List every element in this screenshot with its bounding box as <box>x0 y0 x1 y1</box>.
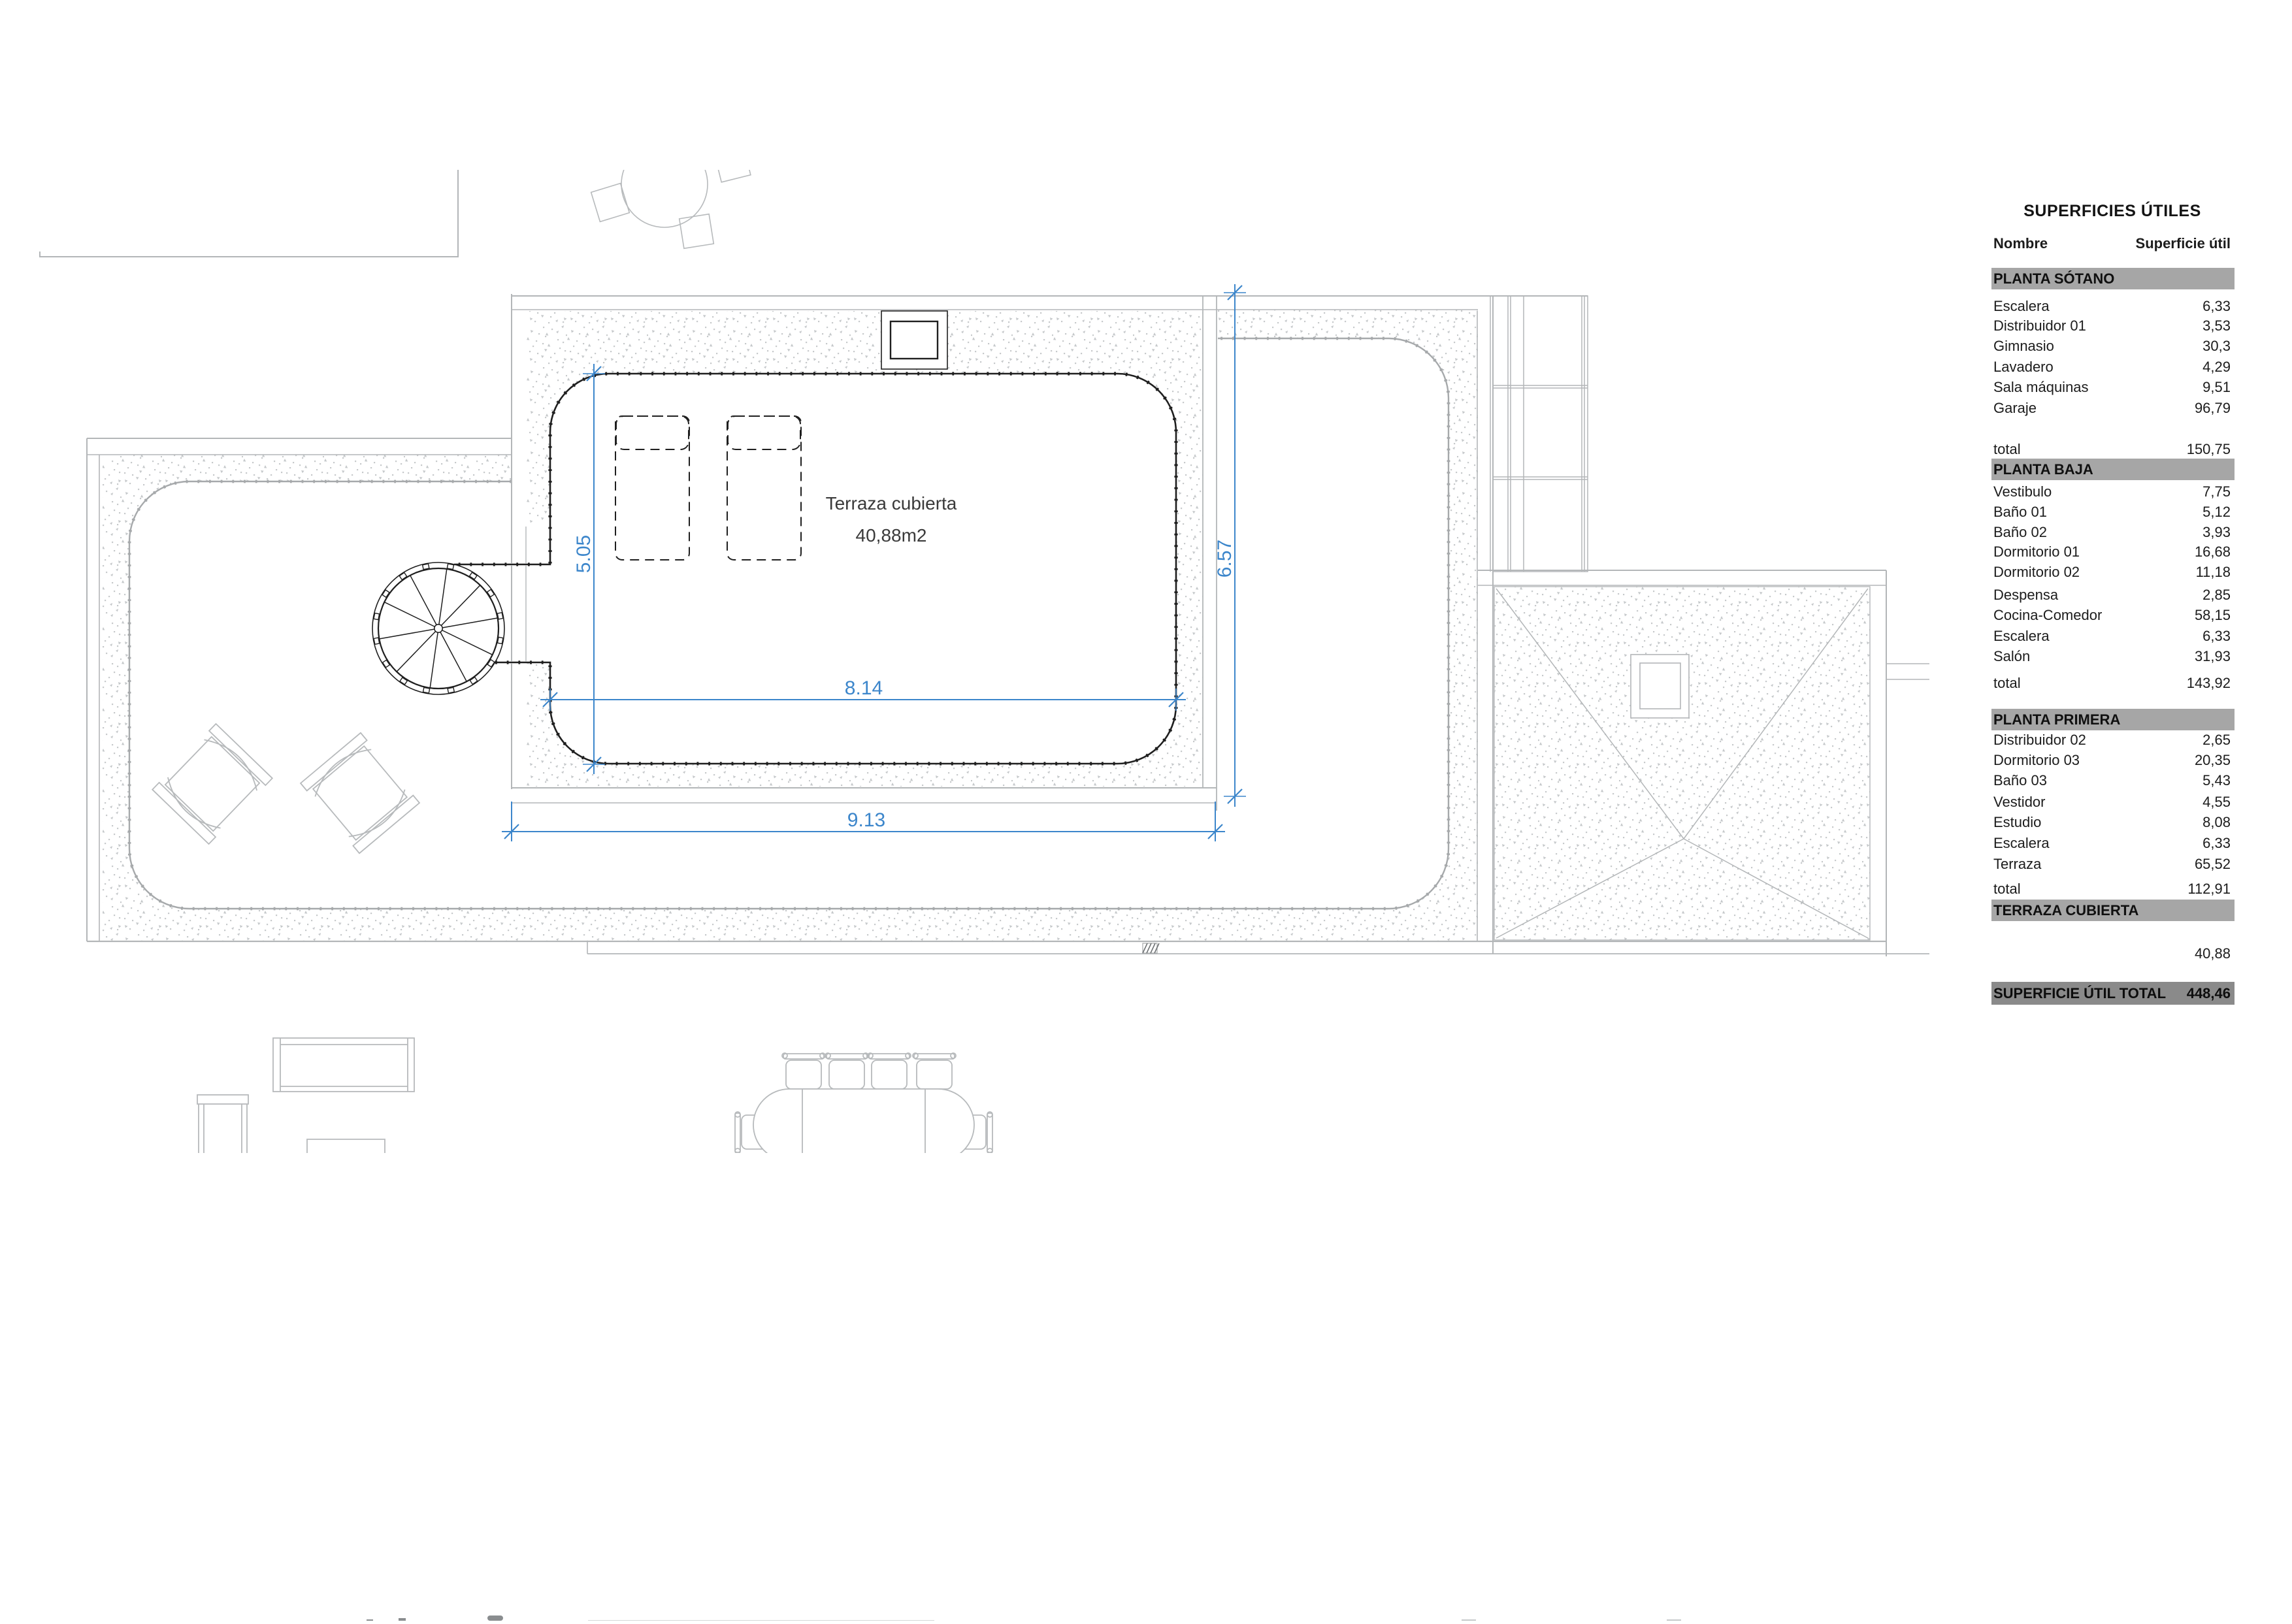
svg-text:2,65: 2,65 <box>2202 732 2231 748</box>
svg-text:PLANTA PRIMERA: PLANTA PRIMERA <box>1993 711 2120 728</box>
svg-text:SUPERFICIES ÚTILES: SUPERFICIES ÚTILES <box>2023 201 2201 220</box>
svg-text:40,88m2: 40,88m2 <box>856 525 927 545</box>
svg-text:6,33: 6,33 <box>2202 835 2231 851</box>
svg-text:31,93: 31,93 <box>2195 648 2231 664</box>
svg-text:total: total <box>1993 441 2021 457</box>
svg-text:Terraza cubierta: Terraza cubierta <box>826 493 957 513</box>
svg-text:Superficie útil: Superficie útil <box>2136 235 2231 252</box>
svg-text:Garaje: Garaje <box>1993 400 2037 416</box>
svg-text:Dormitorio 01: Dormitorio 01 <box>1993 544 2080 560</box>
svg-text:30,3: 30,3 <box>2202 338 2231 354</box>
svg-text:Escalera: Escalera <box>1993 298 2050 314</box>
svg-text:112,91: 112,91 <box>2187 881 2231 897</box>
svg-text:2,85: 2,85 <box>2202 587 2231 603</box>
svg-text:6,33: 6,33 <box>2202 298 2231 314</box>
svg-text:20,35: 20,35 <box>2195 752 2231 768</box>
svg-text:SUPERFICIE ÚTIL TOTAL: SUPERFICIE ÚTIL TOTAL <box>1993 985 2166 1001</box>
svg-text:3,93: 3,93 <box>2202 524 2231 540</box>
svg-text:11,18: 11,18 <box>2196 564 2231 580</box>
svg-text:total: total <box>1993 675 2021 691</box>
svg-text:Vestibulo: Vestibulo <box>1993 483 2052 500</box>
svg-text:4,29: 4,29 <box>2202 359 2231 375</box>
svg-text:Despensa: Despensa <box>1993 587 2059 603</box>
svg-text:Baño 01: Baño 01 <box>1993 504 2047 520</box>
svg-text:150,75: 150,75 <box>2187 441 2231 457</box>
svg-text:96,79: 96,79 <box>2195 400 2231 416</box>
svg-text:3,53: 3,53 <box>2202 317 2231 334</box>
svg-text:143,92: 143,92 <box>2187 675 2231 691</box>
svg-text:7,75: 7,75 <box>2202 483 2231 500</box>
svg-text:Nombre: Nombre <box>1993 235 2048 252</box>
svg-text:total: total <box>1993 881 2021 897</box>
svg-text:Dormitorio 03: Dormitorio 03 <box>1993 752 2080 768</box>
svg-text:6.57: 6.57 <box>1214 540 1236 577</box>
svg-text:8,08: 8,08 <box>2202 814 2231 830</box>
svg-text:8.14: 8.14 <box>845 677 883 699</box>
svg-text:Escalera: Escalera <box>1993 628 2050 644</box>
svg-text:5,12: 5,12 <box>2202 504 2231 520</box>
svg-text:Distribuidor 02: Distribuidor 02 <box>1993 732 2086 748</box>
svg-text:Estudio: Estudio <box>1993 814 2041 830</box>
svg-text:9.13: 9.13 <box>847 809 885 831</box>
svg-text:Dormitorio 02: Dormitorio 02 <box>1993 564 2080 580</box>
svg-text:PLANTA SÓTANO: PLANTA SÓTANO <box>1993 270 2114 287</box>
svg-text:58,15: 58,15 <box>2195 607 2231 623</box>
svg-text:40,88: 40,88 <box>2195 945 2231 962</box>
svg-text:16,68: 16,68 <box>2195 544 2231 560</box>
svg-text:Distribuidor 01: Distribuidor 01 <box>1993 317 2086 334</box>
svg-text:Gimnasio: Gimnasio <box>1993 338 2054 354</box>
svg-text:Escalera: Escalera <box>1993 835 2050 851</box>
svg-text:Lavadero: Lavadero <box>1993 359 2054 375</box>
svg-text:9,51: 9,51 <box>2202 379 2231 395</box>
svg-text:Baño 03: Baño 03 <box>1993 772 2047 788</box>
svg-text:Baño 02: Baño 02 <box>1993 524 2047 540</box>
svg-text:4,55: 4,55 <box>2202 794 2231 810</box>
svg-text:Salón: Salón <box>1993 648 2030 664</box>
svg-text:Terraza: Terraza <box>1993 856 2042 872</box>
svg-text:448,46: 448,46 <box>2187 985 2231 1001</box>
svg-text:Vestidor: Vestidor <box>1993 794 2046 810</box>
svg-text:6,33: 6,33 <box>2202 628 2231 644</box>
svg-text:5,43: 5,43 <box>2202 772 2231 788</box>
svg-text:PLANTA BAJA: PLANTA BAJA <box>1993 461 2093 478</box>
svg-text:TERRAZA CUBIERTA: TERRAZA CUBIERTA <box>1993 902 2139 918</box>
svg-text:65,52: 65,52 <box>2195 856 2231 872</box>
svg-text:5.05: 5.05 <box>573 535 595 573</box>
svg-text:Cocina-Comedor: Cocina-Comedor <box>1993 607 2102 623</box>
svg-text:Sala máquinas: Sala máquinas <box>1993 379 2089 395</box>
